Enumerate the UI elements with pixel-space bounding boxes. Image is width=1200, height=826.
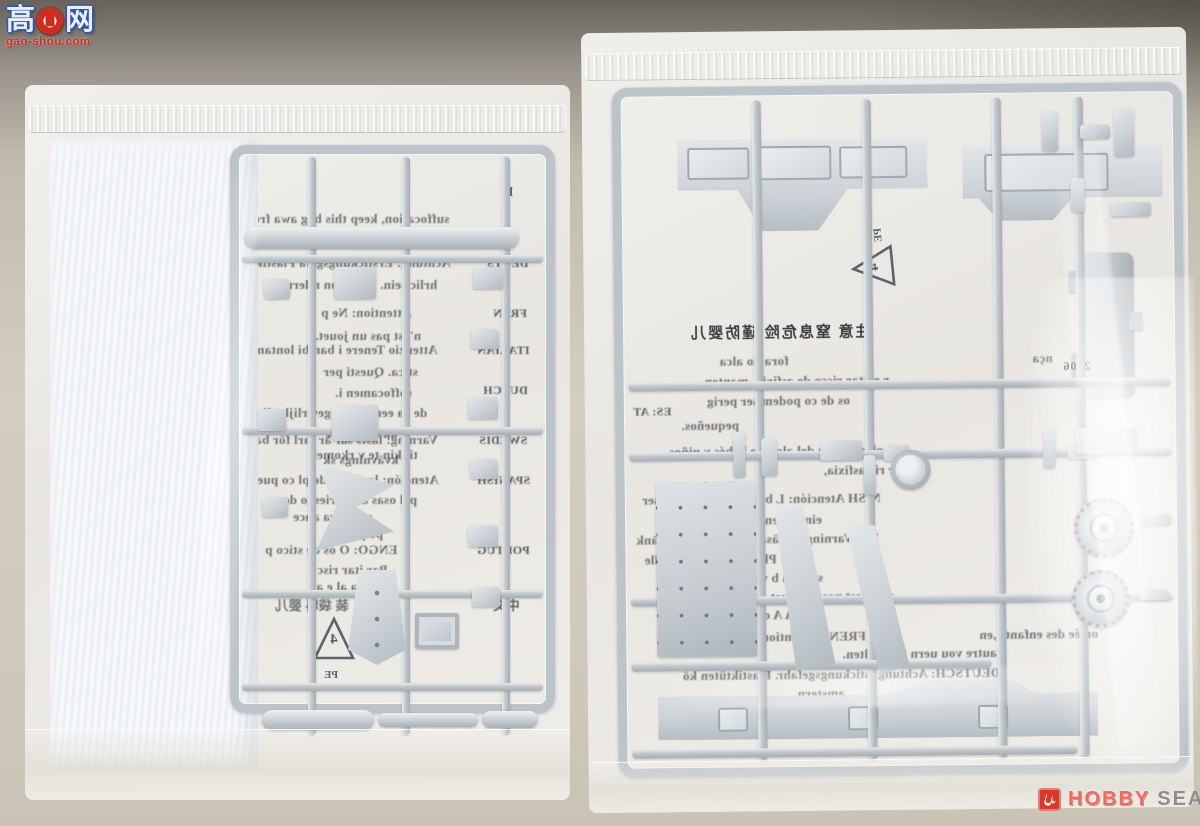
- recycle-mark: 4: [312, 615, 356, 663]
- foam-strip: [50, 140, 258, 772]
- gaoshou-watermark: 高 网 gao-shou.com: [6, 6, 116, 48]
- left-sprue: E 4 PE: [230, 145, 555, 745]
- recycle-mark: 4: [847, 243, 899, 291]
- sprue-block: [1111, 202, 1151, 216]
- sprue-block: [1141, 514, 1171, 525]
- recycle-number: 4: [330, 631, 338, 648]
- toolbox-detail: [757, 146, 831, 181]
- left-bag-bottom-fold: [25, 729, 570, 800]
- sprue-cap: [472, 587, 500, 607]
- sprue-zbrk: [1075, 427, 1137, 454]
- sprue-nut: [890, 450, 930, 490]
- recycle-material: PE: [324, 669, 338, 681]
- sprue-block: [1139, 589, 1169, 600]
- sprue-runner-h: [242, 255, 543, 263]
- sprue-panel: [656, 481, 758, 657]
- sprue-block: [334, 267, 376, 299]
- hobbysearch-search-text: SEARCH: [1157, 788, 1200, 811]
- sprue-cap: [468, 397, 498, 419]
- sprue-block: [258, 409, 286, 431]
- sprue-block: [733, 431, 745, 477]
- part-tab: [1129, 312, 1143, 330]
- sprue-block: [1080, 125, 1110, 139]
- sprue-cyl: [244, 227, 519, 249]
- gaoshou-gear-icon: [37, 8, 63, 34]
- sprue-cyl: [378, 713, 478, 727]
- sprue-block: [820, 440, 862, 460]
- gaoshou-char-left: 高: [6, 6, 35, 35]
- toolbox-detail: [839, 146, 907, 179]
- right-sprue: 4 PE 2906: [612, 82, 1189, 778]
- sprue-block: [1043, 428, 1055, 468]
- sprue-plank: [348, 570, 406, 665]
- recycle-material: PE: [871, 228, 884, 243]
- sprue-wheel: [1074, 497, 1135, 558]
- photo-scene: suffocation, keep this bag awa frochildr…: [0, 0, 1200, 826]
- gaoshou-site-text: gao-shou.com: [6, 36, 116, 48]
- sprue-block: [264, 279, 290, 299]
- sprue-block: [332, 405, 378, 441]
- sprue-block: [1114, 108, 1135, 156]
- toolbox-detail: [984, 153, 1108, 192]
- sprue-block: [863, 455, 875, 495]
- sprue-cap: [471, 329, 499, 349]
- hobbysearch-watermark: HOBBY SEARCH: [1038, 788, 1200, 811]
- sprue-wheel: [1072, 569, 1131, 628]
- exhaust-part: [1078, 252, 1135, 398]
- sprue-block: [262, 497, 288, 517]
- sprue-cap: [470, 459, 498, 479]
- toolbox-detail: [687, 147, 749, 180]
- sprue-runner-h: [242, 427, 543, 435]
- sprue-cap: [468, 525, 498, 547]
- sprue-block: [1070, 178, 1084, 212]
- sprue-cyl: [482, 711, 538, 728]
- right-plastic-bag: 注意 窒息危险 谨防婴儿fora do alcançar evitar risc…: [581, 27, 1194, 813]
- sprue-blockframe: [415, 613, 459, 649]
- hobbysearch-hobby-text: HOBBY: [1068, 788, 1150, 811]
- sprue-cap: [473, 267, 503, 289]
- hatch-detail: [718, 707, 748, 731]
- sprue-runner-h: [242, 683, 543, 691]
- hobbysearch-flame-icon: [1038, 788, 1061, 811]
- sprue-block: [1042, 111, 1058, 151]
- sprue-block: [761, 438, 777, 476]
- sprue-cyl: [262, 710, 374, 730]
- left-plastic-bag: suffocation, keep this bag awa frochildr…: [25, 85, 570, 800]
- gaoshou-char-right: 网: [65, 6, 94, 35]
